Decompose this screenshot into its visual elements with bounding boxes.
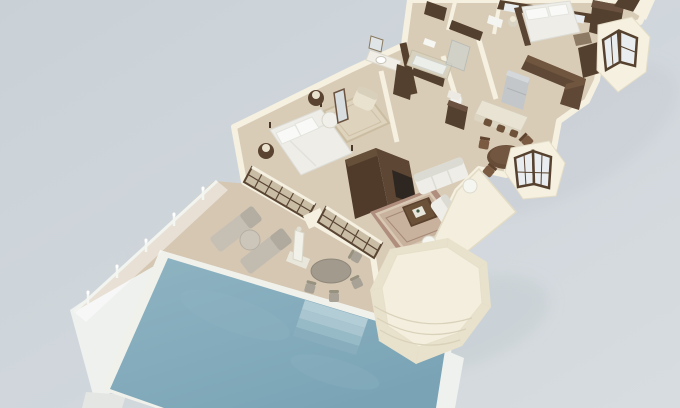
bedside-lamp: [312, 91, 320, 99]
bay-window-pane: [620, 31, 637, 66]
round-side-table: [322, 112, 338, 128]
vanity-sink: [376, 57, 386, 64]
pillow: [548, 4, 569, 17]
outdoor-table: [311, 259, 351, 283]
floorplan-render: Sun deck Private swimming pool Pool entr…: [0, 0, 680, 408]
bedside-lamp: [510, 16, 516, 22]
chair-seat: [329, 293, 339, 302]
outdoor-chair: [329, 290, 339, 302]
floorplan-svg: Sun deck Private swimming pool Pool entr…: [0, 0, 680, 408]
shower-pillar: [293, 230, 304, 262]
chair-seat: [478, 139, 489, 150]
side-table: [240, 230, 260, 250]
planter: [463, 179, 477, 193]
shower-head: [297, 227, 302, 232]
dining-chair: [478, 136, 490, 150]
decor-bottle: [416, 209, 419, 212]
bedside-lamp: [262, 144, 270, 152]
chair-back: [329, 290, 339, 293]
